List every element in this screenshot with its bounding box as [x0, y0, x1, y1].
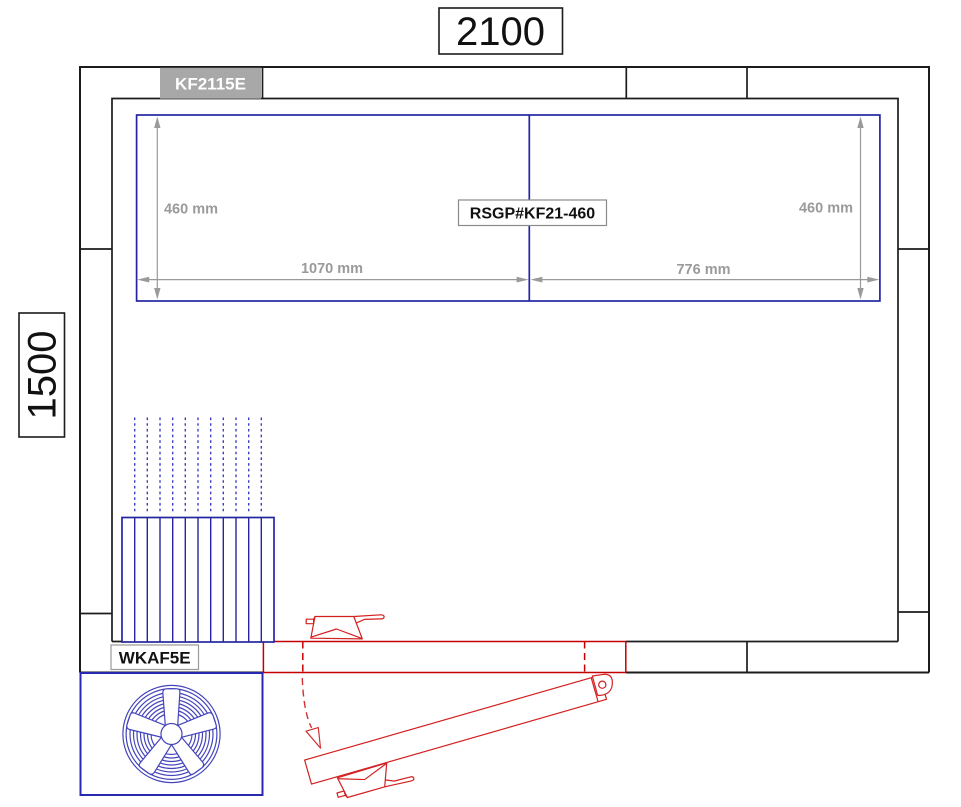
svg-text:KF2115E: KF2115E [175, 75, 246, 94]
svg-text:460 mm: 460 mm [164, 202, 218, 218]
svg-text:460 mm: 460 mm [799, 201, 853, 217]
svg-text:2100: 2100 [456, 10, 545, 54]
svg-text:1500: 1500 [21, 331, 65, 420]
svg-text:1070 mm: 1070 mm [301, 261, 363, 277]
svg-text:RSGP#KF21-460: RSGP#KF21-460 [470, 206, 595, 223]
svg-text:776 mm: 776 mm [676, 262, 730, 278]
svg-text:WKAF5E: WKAF5E [119, 649, 191, 668]
